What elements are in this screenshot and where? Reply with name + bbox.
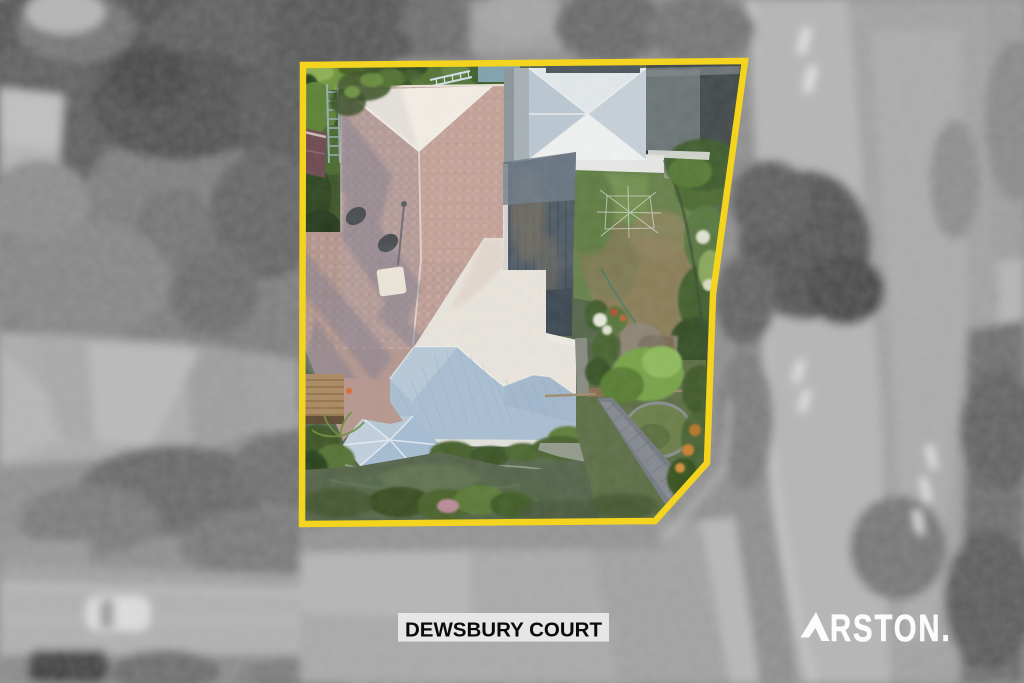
- svg-text:DEWSBURY COURT: DEWSBURY COURT: [405, 619, 603, 642]
- svg-text:RSTON.: RSTON.: [830, 607, 952, 650]
